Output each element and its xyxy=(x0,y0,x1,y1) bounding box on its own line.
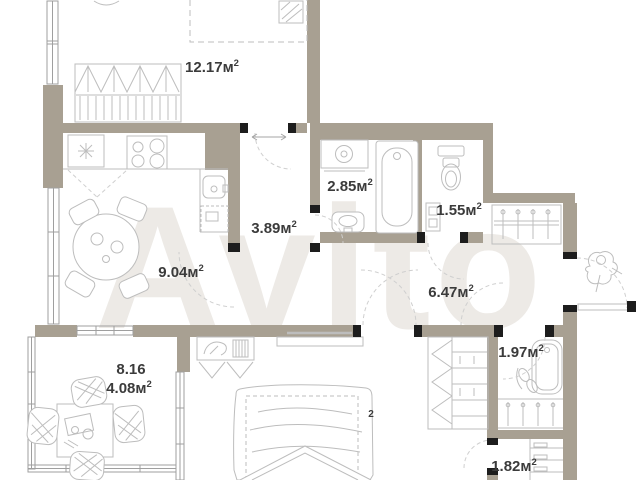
bathroom-sink xyxy=(332,212,364,232)
balcony-chair-right xyxy=(112,405,146,444)
area-label-room-top: 12.17м2 xyxy=(185,58,239,76)
area-label-balcony-full: 8.16 xyxy=(116,361,145,378)
area-label-bath-second: 1.97м2 xyxy=(498,343,544,361)
area-label-bath-main: 2.85м2 xyxy=(327,177,373,195)
balcony-chair-top xyxy=(70,375,108,408)
balcony-chair-bottom xyxy=(69,451,105,480)
area-label-hall-small: 3.89м2 xyxy=(251,219,297,237)
area-label-bedroom-hidden: 2 xyxy=(368,409,374,420)
area-label-wc: 1.55м2 xyxy=(436,201,482,219)
area-label-kitchen: 9.04м2 xyxy=(158,263,204,281)
area-label-balcony-reduced: 4.08м2 xyxy=(106,379,152,397)
bed xyxy=(234,385,373,480)
area-label-storage: 1.82м2 xyxy=(491,457,537,475)
floor-plan: Avito xyxy=(0,0,640,480)
entry-door-leaf xyxy=(578,304,628,310)
area-label-hall-main: 6.47м2 xyxy=(428,283,474,301)
bathtub-main xyxy=(376,141,418,233)
balcony-chair-left xyxy=(26,407,60,446)
balcony-table xyxy=(57,404,113,457)
